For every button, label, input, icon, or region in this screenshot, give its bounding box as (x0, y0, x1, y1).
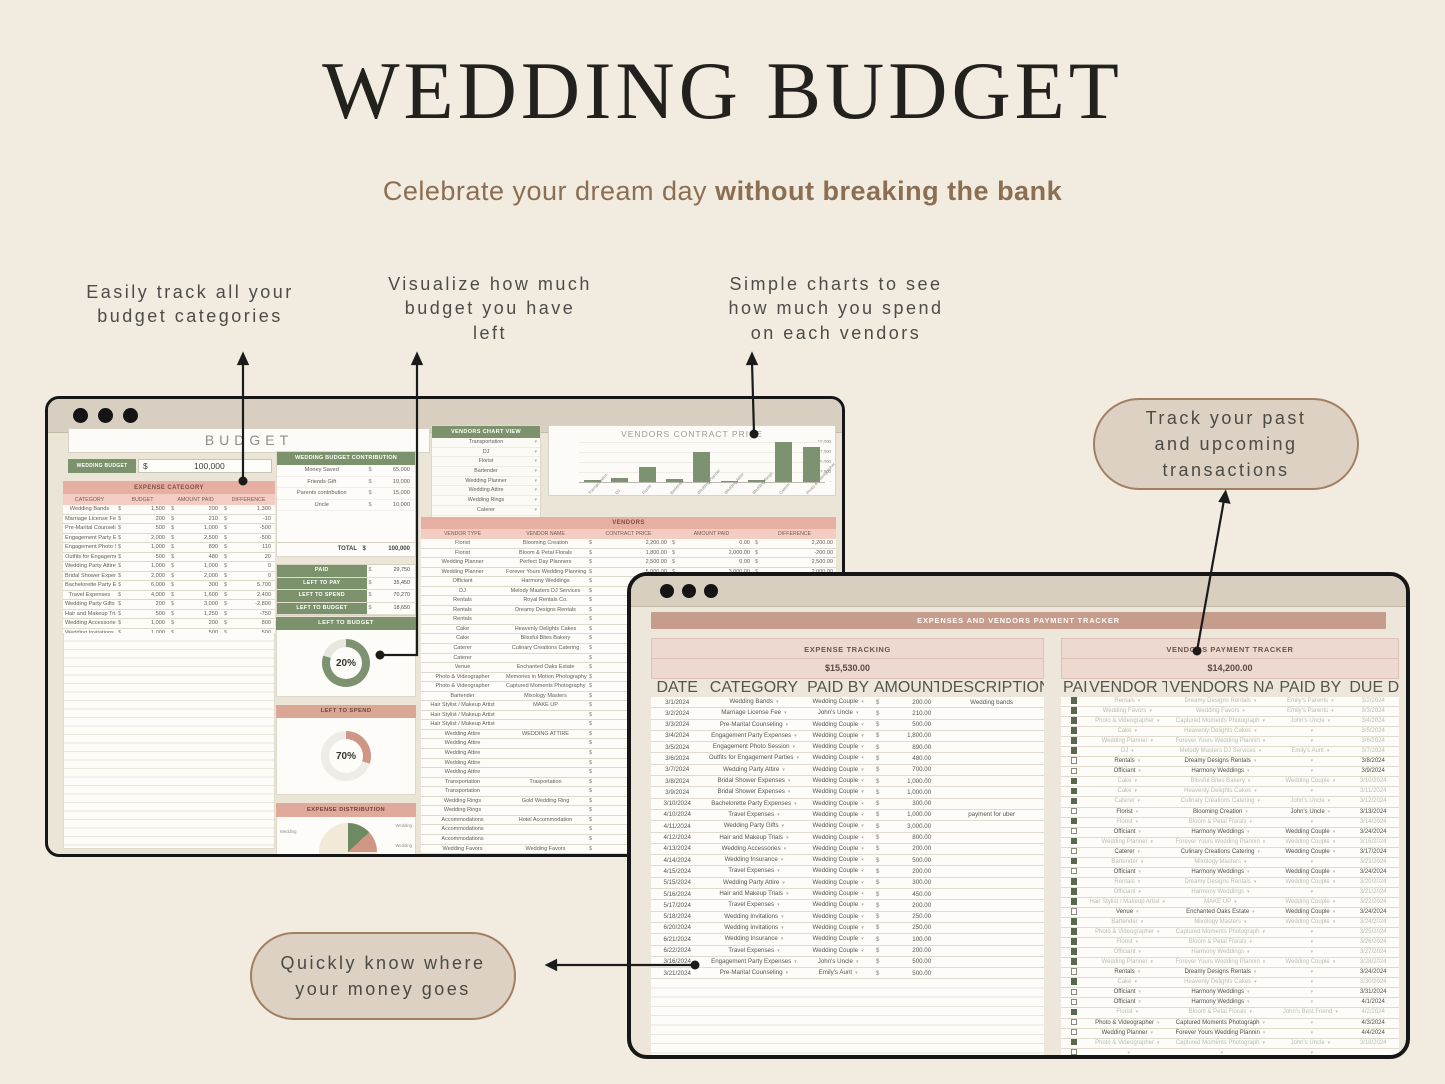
cell[interactable]: Wedding Attire (421, 758, 504, 768)
cell[interactable]: Caterer (421, 644, 504, 654)
cell[interactable]: Hair Stylist / Makeup Artist (421, 701, 504, 711)
cell[interactable]: 1,000.00 (872, 776, 939, 787)
cell[interactable]: 1,800.00 (587, 548, 670, 558)
window-control-icon[interactable] (123, 408, 138, 423)
cell[interactable]: Wedding Planner (1087, 737, 1167, 747)
cell[interactable]: 3/7/2024 (651, 764, 703, 775)
cell[interactable]: Wedding Bands (703, 697, 804, 708)
cell[interactable]: Bartender (421, 691, 504, 701)
cell[interactable] (504, 768, 587, 778)
cell[interactable]: 3/16/2024 (651, 956, 703, 967)
cell[interactable] (504, 720, 587, 730)
expense-category-row[interactable]: Marriage License Fee200210-10 (63, 514, 275, 524)
cell[interactable]: Wedding Couple (804, 922, 871, 933)
cell[interactable]: Friends Gift (277, 476, 367, 488)
cell[interactable] (939, 877, 1044, 888)
cell[interactable]: MAKE UP (504, 701, 587, 711)
cell[interactable]: 3/6/2024 (1347, 737, 1399, 747)
cell[interactable]: Wedding Couple (804, 809, 871, 820)
cell[interactable]: Wedding Couple (804, 753, 871, 764)
cell[interactable]: 250.00 (872, 911, 939, 922)
cell[interactable]: Mixology Masters (1167, 857, 1273, 867)
cell[interactable]: Dreamy Designs Rentals (504, 605, 587, 615)
cell[interactable]: 200.00 (872, 945, 939, 956)
expense-category-row[interactable]: Outfits for Engagement Parties50048020 (63, 552, 275, 562)
cell[interactable]: Engagement Party Expenses (703, 730, 804, 741)
cell[interactable]: 4/10/2024 (651, 809, 703, 820)
cell[interactable]: Photo & Videographer (1087, 1038, 1167, 1048)
cell[interactable]: 3/2/2024 (1347, 697, 1399, 707)
cell[interactable] (1061, 928, 1087, 938)
cell[interactable]: Wedding Couple (804, 889, 871, 900)
cell[interactable] (1273, 1048, 1347, 1058)
cell[interactable] (1061, 948, 1087, 958)
cell[interactable]: Dreamy Designs Rentals (1167, 757, 1273, 767)
cell[interactable]: 3/5/2024 (1347, 727, 1399, 737)
cell[interactable] (939, 900, 1044, 911)
cell[interactable]: Wedding Favors (421, 854, 504, 857)
cell[interactable]: 3/16/2024 (1347, 837, 1399, 847)
cell[interactable]: Wedding Party Gifts (63, 600, 116, 610)
cell[interactable]: Memories in Motion Photography (504, 672, 587, 682)
cell[interactable]: Heavenly Delights Cakes (504, 624, 587, 634)
cell[interactable] (1061, 697, 1087, 707)
cell[interactable]: 1,000.00 (872, 787, 939, 798)
cell[interactable]: 3/18/2024 (1347, 1038, 1399, 1048)
cell[interactable] (504, 749, 587, 759)
expense-row[interactable]: 4/13/2024Wedding AccessoriesWedding Coup… (651, 843, 1044, 854)
cell[interactable] (1061, 1038, 1087, 1048)
cell[interactable]: Caterer (421, 653, 504, 663)
cell[interactable]: 2,500 (169, 533, 222, 543)
cell[interactable]: John's Uncle (1273, 797, 1347, 807)
cell[interactable] (939, 922, 1044, 933)
contribution-row[interactable]: Friends Gift10,000 (277, 476, 415, 488)
cell[interactable]: John's Uncle (804, 708, 871, 719)
cell[interactable]: Florist (1087, 807, 1167, 817)
cell[interactable]: 4,000 (116, 590, 169, 600)
cell[interactable]: Dreamy Designs Rentals (1167, 697, 1273, 707)
cell[interactable]: Heavenly Delights Cakes (1167, 787, 1273, 797)
cell[interactable] (939, 832, 1044, 843)
expense-row[interactable]: 6/20/2024Wedding InvitationsWedding Coup… (651, 922, 1044, 933)
cell[interactable]: 10,000 (367, 476, 415, 488)
cell[interactable]: Harmony Weddings (1167, 827, 1273, 837)
cell[interactable]: Wedding Couple (1273, 827, 1347, 837)
cell[interactable]: Hair Stylist / Makeup Artist (421, 720, 504, 730)
cell[interactable]: 500 (116, 552, 169, 562)
cell[interactable]: Wedding Accessories (63, 619, 116, 629)
cell[interactable] (1167, 1048, 1273, 1058)
vendor-payment-row[interactable] (1061, 1048, 1399, 1058)
cell[interactable]: Wedding Couple (804, 877, 871, 888)
cell[interactable]: 2,000 (116, 571, 169, 581)
cell[interactable] (1061, 847, 1087, 857)
contribution-row[interactable]: Uncle10,000 (277, 499, 415, 511)
expense-category-row[interactable]: Hair and Makeup Trials5001,250-750 (63, 609, 275, 619)
cell[interactable]: 300.00 (872, 798, 939, 809)
cell[interactable]: Wedding Favors (504, 844, 587, 854)
contribution-row[interactable]: Money Saved65,000 (277, 465, 415, 476)
cell[interactable]: 5/16/2024 (651, 889, 703, 900)
cell[interactable] (504, 758, 587, 768)
cell[interactable]: Harmony Weddings (1167, 948, 1273, 958)
cell[interactable]: Pre-Marital Counseling (703, 968, 804, 979)
cell[interactable]: Wedding Couple (1273, 958, 1347, 968)
cell[interactable] (1273, 1028, 1347, 1038)
cell[interactable]: 500.00 (872, 968, 939, 979)
cell[interactable]: Bridal Shower Expenses (703, 787, 804, 798)
cell[interactable]: Hair and Makeup Trials (63, 609, 116, 619)
vendor-payment-row[interactable]: OfficiantHarmony Weddings3/27/2024 (1061, 948, 1399, 958)
vendor-payment-row[interactable]: CakeBlissful Bites BakeryWedding Couple3… (1061, 777, 1399, 787)
cell[interactable]: Dreamy Designs Rentals (1167, 968, 1273, 978)
cell[interactable]: Bloom & Petal Florals (504, 548, 587, 558)
cell[interactable] (1061, 978, 1087, 988)
cell[interactable] (504, 825, 587, 835)
cell[interactable]: 3/8/2024 (1347, 757, 1399, 767)
cell[interactable] (939, 753, 1044, 764)
cell[interactable] (504, 834, 587, 844)
cell[interactable]: 3/31/2024 (1347, 988, 1399, 998)
cell[interactable] (504, 787, 587, 797)
cell[interactable]: WEDDING ATTIRE (504, 729, 587, 739)
cell[interactable]: 200 (116, 600, 169, 610)
wedding-budget-input[interactable]: $ 100,000 (138, 459, 272, 473)
vendor-payment-row[interactable]: RentalsDreamy Designs RentalsWedding Cou… (1061, 877, 1399, 887)
cell[interactable]: Bloom & Petal Florals (1167, 938, 1273, 948)
cell[interactable]: Money Saved (277, 465, 367, 476)
cell[interactable] (939, 968, 1044, 979)
cell[interactable]: 20 (222, 552, 275, 562)
cell[interactable]: Officiant (1087, 988, 1167, 998)
cell[interactable]: 4/15/2024 (651, 866, 703, 877)
cell[interactable]: Travel Expenses (63, 590, 116, 600)
cell[interactable]: 890.00 (872, 742, 939, 753)
cell[interactable]: Bridal Shower Expenses (703, 776, 804, 787)
cell[interactable] (1061, 767, 1087, 777)
cell[interactable]: LEFT TO PAY (277, 577, 367, 590)
cell[interactable]: Emily's Parents (1273, 697, 1347, 707)
cell[interactable] (939, 776, 1044, 787)
cell[interactable]: Cake (1087, 978, 1167, 988)
vendor-payment-row[interactable]: VenueEnchanted Oaks EstateWedding Couple… (1061, 907, 1399, 917)
cell[interactable]: Cake (421, 624, 504, 634)
cell[interactable]: Culinary Creations Catering (1167, 847, 1273, 857)
cell[interactable]: 500.00 (872, 956, 939, 967)
expense-row[interactable]: 6/22/2024Travel ExpensesWedding Couple20… (651, 945, 1044, 956)
cell[interactable] (1273, 857, 1347, 867)
summary-row[interactable]: PAID29,750 (277, 565, 415, 577)
cell[interactable]: 3/17/2024 (1347, 847, 1399, 857)
cell[interactable]: Wedding Couple (804, 730, 871, 741)
cell[interactable]: Bloom & Petal Florals (1167, 1008, 1273, 1018)
cell[interactable]: Wedding Couple (1273, 897, 1347, 907)
cell[interactable]: 3/22/2024 (1347, 897, 1399, 907)
vendor-payment-row[interactable]: FloristBloom & Petal FloralsJohn's Best … (1061, 1008, 1399, 1018)
cell[interactable]: Engagement Party Expenses (703, 956, 804, 967)
cell[interactable] (1061, 777, 1087, 787)
cell[interactable]: Caterer (1087, 847, 1167, 857)
cell[interactable]: MAKE UP (1167, 897, 1273, 907)
cell[interactable]: 3/21/2024 (1347, 887, 1399, 897)
cell[interactable]: Rentals (1087, 757, 1167, 767)
cell[interactable] (939, 708, 1044, 719)
cell[interactable] (1273, 938, 1347, 948)
cell[interactable] (1061, 938, 1087, 948)
cell[interactable]: 4/4/2024 (1347, 1028, 1399, 1038)
cell[interactable]: 4/11/2024 (651, 821, 703, 832)
cell[interactable]: 3,000 (169, 600, 222, 610)
cell[interactable]: 500 (116, 609, 169, 619)
summary-row[interactable]: LEFT TO PAY35,450 (277, 577, 415, 590)
cell[interactable] (939, 866, 1044, 877)
cell[interactable]: 3/21/2024 (651, 968, 703, 979)
cell[interactable]: 4/1/2024 (1347, 998, 1399, 1008)
cell[interactable]: Accommodations (421, 825, 504, 835)
cell[interactable] (1061, 918, 1087, 928)
cell[interactable]: 1,250 (169, 609, 222, 619)
cell[interactable]: 2,000 (169, 571, 222, 581)
cell[interactable] (1061, 707, 1087, 717)
vendor-payment-row[interactable]: OfficiantHarmony WeddingsWedding Couple3… (1061, 827, 1399, 837)
cell[interactable]: 3/9/2024 (651, 787, 703, 798)
cell[interactable]: 700.00 (872, 764, 939, 775)
cell[interactable]: 500 (116, 524, 169, 534)
cell[interactable]: Wedding Couple (1273, 847, 1347, 857)
cell[interactable]: Travel Expenses (703, 866, 804, 877)
cell[interactable]: Wedding Insurance (703, 934, 804, 945)
cell[interactable]: Wedding Couple (1273, 777, 1347, 787)
cell[interactable] (1347, 1048, 1399, 1058)
vendor-payment-row[interactable]: FloristBlooming CreationJohn's Uncle3/13… (1061, 807, 1399, 817)
cell[interactable]: 3/13/2024 (1347, 807, 1399, 817)
cell[interactable]: 3/26/2024 (1347, 938, 1399, 948)
cell[interactable]: 100.00 (872, 934, 939, 945)
cell[interactable]: -500 (222, 533, 275, 543)
cell[interactable]: Harmony Weddings (1167, 887, 1273, 897)
cell[interactable]: Florist (421, 548, 504, 558)
cell[interactable] (504, 710, 587, 720)
cell[interactable]: 18,650 (367, 602, 415, 615)
vendor-dropdown-item[interactable]: Wedding Rings (432, 496, 540, 506)
cell[interactable]: 1,000 (116, 562, 169, 572)
cell[interactable] (504, 653, 587, 663)
cell[interactable]: 3/1/2024 (651, 697, 703, 708)
cell[interactable] (1061, 737, 1087, 747)
cell[interactable]: John's Uncle (804, 956, 871, 967)
cell[interactable]: Captured Moments Photograph (1167, 1018, 1273, 1028)
cell[interactable] (1061, 897, 1087, 907)
cell[interactable]: Gold Wedding Ring (504, 796, 587, 806)
cell[interactable]: 70,270 (367, 590, 415, 603)
vendor-row[interactable]: FloristBloom & Petal Florals1,800.002,00… (421, 548, 836, 558)
cell[interactable]: Wedding Couple (1273, 907, 1347, 917)
cell[interactable]: Transportation (421, 787, 504, 797)
cell[interactable]: 3/12/2024 (1347, 797, 1399, 807)
cell[interactable] (1061, 1048, 1087, 1058)
expense-category-row[interactable]: Wedding Party Attire1,0001,0000 (63, 562, 275, 572)
cell[interactable]: Blooming Creation (1167, 807, 1273, 817)
cell[interactable]: 200.00 (872, 866, 939, 877)
cell[interactable]: Wedding Rings (421, 806, 504, 816)
cell[interactable]: 2,400 (222, 590, 275, 600)
empty-grid-rows[interactable] (651, 979, 1044, 1059)
cell[interactable]: 200.00 (872, 843, 939, 854)
cell[interactable]: Wedding Couple (804, 798, 871, 809)
cell[interactable]: Wedding Couple (804, 832, 871, 843)
cell[interactable]: Culinary Creations Catering (504, 644, 587, 654)
cell[interactable]: Wedding Planner (1087, 1028, 1167, 1038)
cell[interactable]: Wedding Insurance (703, 855, 804, 866)
cell[interactable] (1061, 817, 1087, 827)
cell[interactable]: Culinary Creations Catering (1167, 797, 1273, 807)
cell[interactable]: Wedding Favors (421, 844, 504, 854)
cell[interactable]: Wedding Invitations (703, 911, 804, 922)
expense-row[interactable]: 5/17/2024Travel ExpensesWedding Couple20… (651, 900, 1044, 911)
cell[interactable]: Venue (421, 663, 504, 673)
vendor-payment-row[interactable]: RentalsDreamy Designs RentalsEmily's Par… (1061, 697, 1399, 707)
cell[interactable]: 3/24/2024 (1347, 827, 1399, 837)
cell[interactable]: John's Uncle (1273, 717, 1347, 727)
cell[interactable]: Officiant (1087, 948, 1167, 958)
cell[interactable]: 500.00 (872, 855, 939, 866)
cell[interactable] (1061, 727, 1087, 737)
cell[interactable]: Harmony Weddings (1167, 998, 1273, 1008)
cell[interactable] (939, 889, 1044, 900)
cell[interactable] (1273, 968, 1347, 978)
cell[interactable] (1273, 988, 1347, 998)
cell[interactable]: 500.00 (872, 719, 939, 730)
cell[interactable] (1061, 907, 1087, 917)
cell[interactable]: Travel Expenses (703, 900, 804, 911)
window-control-icon[interactable] (682, 584, 696, 598)
cell[interactable]: Bartender (1087, 857, 1167, 867)
cell[interactable]: Bloom & Petal Florals (1167, 817, 1273, 827)
cell[interactable]: 4/2/2024 (1347, 1008, 1399, 1018)
cell[interactable]: Forever Yours Wedding Plannin (1167, 958, 1273, 968)
cell[interactable]: Bachelorette Party Expenses (703, 798, 804, 809)
vendor-payment-row[interactable]: CakeHeavenly Delights Cakes3/30/2024 (1061, 978, 1399, 988)
cell[interactable]: Wedding Attire (421, 729, 504, 739)
vendor-payment-row[interactable]: FloristBloom & Petal Florals3/26/2024 (1061, 938, 1399, 948)
vendor-payment-row[interactable] (1061, 1058, 1399, 1059)
cell[interactable]: 0.00 (670, 539, 753, 548)
cell[interactable] (1273, 887, 1347, 897)
cell[interactable]: 110 (222, 543, 275, 553)
cell[interactable] (1061, 807, 1087, 817)
cell[interactable]: 6,000 (116, 581, 169, 591)
cell[interactable]: Photo & Videographer (1087, 928, 1167, 938)
vendor-payment-row[interactable]: Hair Stylist / Makeup ArtistMAKE UPWeddi… (1061, 897, 1399, 907)
cell[interactable]: Rentals (421, 615, 504, 625)
window-control-icon[interactable] (704, 584, 718, 598)
cell[interactable]: 1,000 (169, 524, 222, 534)
cell[interactable]: John's Best Friend (1273, 1008, 1347, 1018)
cell[interactable]: LEFT TO BUDGET (277, 602, 367, 615)
vendor-dropdown-item[interactable]: Wedding Attire (432, 486, 540, 496)
vendor-payment-row[interactable]: Wedding PlannerForever Yours Wedding Pla… (1061, 958, 1399, 968)
cell[interactable]: Wedding Planner (1087, 837, 1167, 847)
cell[interactable]: Rentals (1087, 697, 1167, 707)
cell[interactable]: Bachelorette Party Expenses (63, 581, 116, 591)
cell[interactable]: 3/28/2024 (1347, 958, 1399, 968)
cell[interactable]: 800.00 (872, 832, 939, 843)
cell[interactable]: Wedding Attire (421, 749, 504, 759)
vendor-payment-row[interactable]: Wedding PlannerForever Yours Wedding Pla… (1061, 837, 1399, 847)
cell[interactable]: Harmony Weddings (504, 577, 587, 587)
cell[interactable]: Wedding Party Gifts (703, 821, 804, 832)
cell[interactable]: Outfits for Engagement Parties (703, 753, 804, 764)
cell[interactable]: 3/6/2024 (651, 753, 703, 764)
cell[interactable] (1347, 1058, 1399, 1059)
cell[interactable]: 3/9/2024 (1347, 767, 1399, 777)
cell[interactable]: Dreamy Designs Rentals (1167, 877, 1273, 887)
cell[interactable] (1061, 1058, 1087, 1059)
cell[interactable]: Perfect Day Planners (504, 558, 587, 568)
cell[interactable]: 2,000 (116, 533, 169, 543)
window-control-icon[interactable] (660, 584, 674, 598)
cell[interactable]: Forever Yours Wedding Plannin (1167, 1028, 1273, 1038)
cell[interactable]: Wedding Couple (1273, 918, 1347, 928)
cell[interactable]: Wedding Rings (421, 796, 504, 806)
cell[interactable]: 65,000 (367, 465, 415, 476)
cell[interactable]: 3/3/2024 (651, 719, 703, 730)
expense-row[interactable]: 3/6/2024Outfits for Engagement PartiesWe… (651, 753, 1044, 764)
cell[interactable]: 3/25/2024 (1347, 928, 1399, 938)
cell[interactable]: 1,600 (169, 590, 222, 600)
cell[interactable]: Rentals (1087, 968, 1167, 978)
cell[interactable]: 3/24/2024 (1347, 968, 1399, 978)
cell[interactable] (1273, 817, 1347, 827)
cell[interactable]: Harmony Weddings (1167, 988, 1273, 998)
empty-grid-rows[interactable] (63, 633, 275, 849)
cell[interactable]: 3/7/2024 (1347, 747, 1399, 757)
vendor-payment-row[interactable]: Photo & VideographerCaptured Moments Pho… (1061, 1038, 1399, 1048)
cell[interactable]: 10,000 (367, 499, 415, 511)
expense-row[interactable]: 3/5/2024Engagement Photo SessionWedding … (651, 742, 1044, 753)
cell[interactable]: Emily's Aunt (804, 968, 871, 979)
cell[interactable]: 3/30/2024 (1347, 978, 1399, 988)
cell[interactable]: Wedding Couple (804, 866, 871, 877)
expense-row[interactable]: 3/7/2024Wedding Party AttireWedding Coup… (651, 764, 1044, 775)
cell[interactable]: Blooming Creation (504, 539, 587, 548)
cell[interactable]: Wedding Attire (421, 739, 504, 749)
cell[interactable] (1061, 857, 1087, 867)
vendor-dropdown-item[interactable]: Transportation (432, 438, 540, 448)
expense-row[interactable]: 4/12/2024Hair and Makeup TrialsWedding C… (651, 832, 1044, 843)
cell[interactable]: 3/10/2024 (1347, 777, 1399, 787)
cell[interactable]: Captured Moments Photography (504, 682, 587, 692)
expense-row[interactable]: 3/3/2024Pre-Marital CounselingWedding Co… (651, 719, 1044, 730)
cell[interactable]: 6/22/2024 (651, 945, 703, 956)
cell[interactable]: Wedding Couple (804, 821, 871, 832)
cell[interactable]: Forever Yours Wedding Planning (504, 567, 587, 577)
cell[interactable] (1273, 727, 1347, 737)
cell[interactable]: Wedding Couple (804, 855, 871, 866)
cell[interactable]: Wedding Couple (804, 776, 871, 787)
cell[interactable]: 3/2/2024 (651, 708, 703, 719)
cell[interactable]: Wedding Bands (63, 505, 116, 514)
cell[interactable]: Wedding Couple (804, 900, 871, 911)
vendor-dropdown-item[interactable]: Caterer (432, 506, 540, 516)
window-control-icon[interactable] (73, 408, 88, 423)
cell[interactable] (939, 764, 1044, 775)
cell[interactable]: 6/20/2024 (651, 922, 703, 933)
cell[interactable]: 2,500.00 (753, 558, 836, 568)
cell[interactable]: 0 (222, 571, 275, 581)
cell[interactable]: DJ (1087, 747, 1167, 757)
